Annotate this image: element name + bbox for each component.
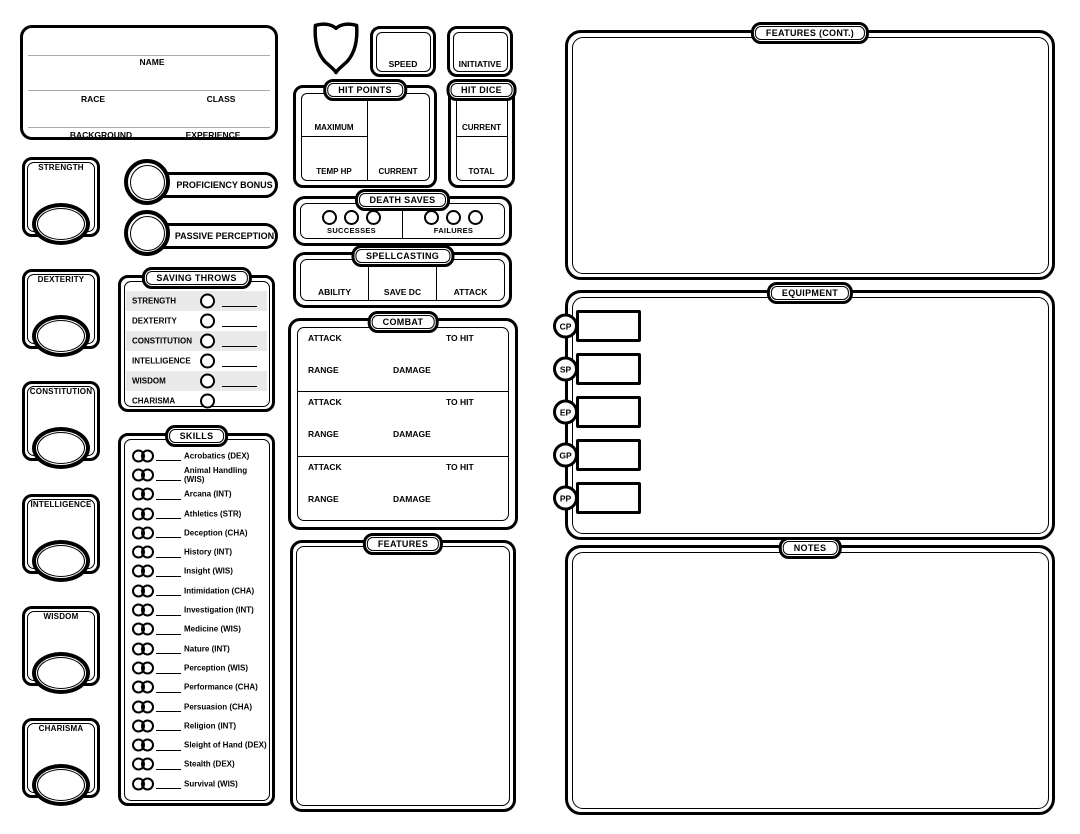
hit-points-panel: HIT POINTS MAXIMUM TEMP HP CURRENT [293,85,437,188]
saving-throw-row: CONSTITUTION [126,331,267,351]
speed-box[interactable]: SPEED [370,26,436,77]
combat-attack-row[interactable]: ATTACK TO HIT RANGE DAMAGE [298,391,508,455]
skill-row: Persuasion (CHA) [126,697,267,716]
skill-expertise-circle[interactable] [141,565,154,578]
skill-row: Deception (CHA) [126,523,267,542]
skill-label: Nature (INT) [184,644,230,653]
hit-dice-panel: HIT DICE CURRENT TOTAL [448,85,515,188]
divider [28,90,270,91]
hit-dice-grid: CURRENT TOTAL [456,93,508,181]
skill-label: Performance (CHA) [184,683,258,692]
saving-throw-proficiency-circle[interactable] [200,374,215,389]
skill-expertise-circle[interactable] [141,739,154,752]
hit-dice-tab: HIT DICE [446,79,517,101]
skill-expertise-circle[interactable] [141,468,154,481]
speed-label: SPEED [373,59,433,69]
skill-row: Performance (CHA) [126,678,267,697]
skill-value-line[interactable] [156,615,181,616]
skill-value-line[interactable] [156,460,181,461]
coin-row: CP [553,310,643,342]
identity-panel: NAME RACE CLASS BACKGROUND EXPERIENCE [20,25,278,140]
features-tab: FEATURES [363,533,443,555]
skill-label: Athletics (STR) [184,509,241,518]
skill-value-line[interactable] [156,518,181,519]
skill-value-line[interactable] [156,711,181,712]
attack-label: ATTACK [308,333,342,343]
ability-label: WISDOM [22,612,100,621]
success-circle[interactable] [366,210,381,225]
skills-tab: SKILLS [165,425,229,447]
hit-dice-total-label: TOTAL [457,167,507,176]
failure-circles [424,210,483,225]
proficiency-bonus-circle[interactable] [124,159,170,205]
coin-row: SP [553,353,643,385]
skill-row: Insight (WIS) [126,562,267,581]
skill-value-line[interactable] [156,769,181,770]
ability-score-box[interactable]: INTELLIGENCE [22,494,100,574]
skill-value-line[interactable] [156,673,181,674]
success-circle[interactable] [344,210,359,225]
combat-panel: COMBAT ATTACK TO HIT RANGE DAMAGE ATTACK… [288,318,518,530]
attack-label: ATTACK [308,397,342,407]
saving-throw-label: CONSTITUTION [132,337,192,346]
skill-row: Perception (WIS) [126,658,267,677]
hit-points-left-column: MAXIMUM TEMP HP [302,94,368,180]
saving-throw-label: WISDOM [132,377,166,386]
coin-amount-box[interactable] [576,482,641,514]
skill-label: Stealth (DEX) [184,760,235,769]
skill-rows: Acrobatics (DEX) Animal Handling (WIS) A… [126,446,267,793]
coin-amount-box[interactable] [576,396,641,428]
coin-amount-box[interactable] [576,439,641,471]
range-label: RANGE [308,429,339,439]
hit-points-tab: HIT POINTS [323,79,407,101]
failure-circle[interactable] [446,210,461,225]
coin-type-label: GP [559,450,571,460]
skill-value-line[interactable] [156,634,181,635]
divider [28,55,270,56]
dnd-character-sheet: NAME RACE CLASS BACKGROUND EXPERIENCE ST… [0,0,1080,834]
death-saves-panel: DEATH SAVES SUCCESSES FAILURES [293,196,512,246]
skill-value-line[interactable] [156,576,181,577]
skill-label: History (INT) [184,548,232,557]
coin-row: GP [553,439,643,471]
name-label: NAME [139,57,164,67]
spellcasting-cell-label: ATTACK [437,287,504,297]
ability-label: INTELLIGENCE [22,500,100,509]
skills-title: SKILLS [180,431,214,441]
features-field[interactable] [301,551,505,801]
hp-current-label: CURRENT [368,167,429,176]
skill-value-line[interactable] [156,480,181,481]
ability-modifier-oval[interactable] [32,203,90,245]
class-label: CLASS [207,94,236,104]
hit-dice-current-label: CURRENT [457,123,507,132]
ability-label: STRENGTH [22,163,100,172]
skill-expertise-circle[interactable] [141,449,154,462]
spellcasting-cell-label: SAVE DC [369,287,436,297]
combat-attack-row[interactable]: ATTACK TO HIT RANGE DAMAGE [298,328,508,391]
skill-row: Arcana (INT) [126,485,267,504]
skill-label: Perception (WIS) [184,663,248,672]
ability-label: CHARISMA [22,724,100,733]
class-field[interactable] [163,60,267,88]
skill-expertise-circle[interactable] [141,681,154,694]
saving-throw-value-line[interactable] [222,406,257,407]
shield-icon[interactable] [311,21,361,80]
skill-label: Sleight of Hand (DEX) [184,741,267,750]
notes-panel: NOTES [565,545,1055,815]
skill-row: Athletics (STR) [126,504,267,523]
skill-label: Deception (CHA) [184,528,248,537]
range-label: RANGE [308,494,339,504]
skill-row: Religion (INT) [126,716,267,735]
coin-type-label: EP [560,407,571,417]
saving-throws-title: SAVING THROWS [156,273,236,283]
combat-tab: COMBAT [368,311,439,333]
damage-label: DAMAGE [393,494,431,504]
initiative-label: INITIATIVE [450,59,510,69]
proficiency-bonus-label: PROFICIENCY BONUS [176,180,272,190]
race-label: RACE [81,94,105,104]
skill-value-line[interactable] [156,730,181,731]
saving-throw-label: DEXTERITY [132,317,177,326]
skill-label: Intimidation (CHA) [184,586,254,595]
skill-label: Investigation (INT) [184,606,254,615]
hp-temp-cell[interactable]: TEMP HP [302,137,367,180]
skill-label: Medicine (WIS) [184,625,241,634]
notes-title: NOTES [794,543,827,553]
ability-label: DEXTERITY [22,275,100,284]
experience-label: EXPERIENCE [186,130,241,140]
skill-expertise-circle[interactable] [141,719,154,732]
coin-type-badge: PP [553,486,578,511]
coin-column: CP SP EP GP [553,310,643,525]
skill-value-line[interactable] [156,788,181,789]
skill-expertise-circle[interactable] [141,546,154,559]
skill-label: Animal Handling (WIS) [184,466,267,484]
skill-expertise-circle[interactable] [141,507,154,520]
equipment-title: EQUIPMENT [782,288,838,298]
spellcasting-title: SPELLCASTING [366,251,439,261]
skill-label: Survival (WIS) [184,779,238,788]
success-circles [322,210,381,225]
skills-panel: SKILLS Acrobatics (DEX) Animal Handling … [118,433,275,806]
coin-type-badge: CP [553,314,578,339]
hp-maximum-label: MAXIMUM [302,123,367,132]
saving-throw-rows: STRENGTH DEXTERITY CONSTITUTION [126,291,267,411]
to-hit-label: TO HIT [446,333,474,343]
equipment-field[interactable] [576,301,1044,529]
features-panel: FEATURES [290,540,516,812]
features-cont-title: FEATURES (CONT.) [766,28,854,38]
saving-throw-row: STRENGTH [126,291,267,311]
spellcasting-cell-label: ABILITY [301,287,368,297]
failures-label: FAILURES [434,226,474,235]
passive-perception-label: PASSIVE PERCEPTION [175,231,274,241]
skill-value-line[interactable] [156,537,181,538]
failure-circle[interactable] [468,210,483,225]
range-label: RANGE [308,365,339,375]
skill-row: Intimidation (CHA) [126,581,267,600]
coin-type-badge: EP [553,400,578,425]
saving-throw-value-line[interactable] [222,386,257,387]
skill-expertise-circle[interactable] [141,758,154,771]
skill-value-line[interactable] [156,499,181,500]
skill-row: Stealth (DEX) [126,755,267,774]
combat-attack-row[interactable]: ATTACK TO HIT RANGE DAMAGE [298,456,508,520]
notes-tab: NOTES [779,537,842,559]
skill-label: Persuasion (CHA) [184,702,252,711]
ability-modifier-oval[interactable] [32,315,90,357]
features-cont-panel: FEATURES (CONT.) [565,30,1055,280]
coin-type-label: PP [560,493,571,503]
coin-amount-box[interactable] [576,353,641,385]
coin-type-label: SP [560,364,571,374]
ability-modifier-oval[interactable] [32,427,90,469]
coin-type-badge: GP [553,443,578,468]
notes-field[interactable] [576,556,1044,804]
skill-expertise-circle[interactable] [141,584,154,597]
features-cont-field[interactable] [576,41,1044,269]
skill-label: Insight (WIS) [184,567,233,576]
skill-expertise-circle[interactable] [141,604,154,617]
skill-row: Medicine (WIS) [126,620,267,639]
damage-label: DAMAGE [393,365,431,375]
ability-modifier-oval[interactable] [32,540,90,582]
saving-throw-proficiency-circle[interactable] [200,394,215,409]
hp-current-cell[interactable]: CURRENT [368,94,429,180]
divider [28,127,270,128]
ability-score-box[interactable]: STRENGTH [22,157,100,237]
saving-throw-label: CHARISMA [132,397,175,406]
hit-points-grid: MAXIMUM TEMP HP CURRENT [301,93,430,181]
skill-label: Arcana (INT) [184,490,232,499]
skill-expertise-circle[interactable] [141,661,154,674]
initiative-box[interactable]: INITIATIVE [447,26,513,77]
skill-value-line[interactable] [156,653,181,654]
ability-score-box[interactable]: DEXTERITY [22,269,100,349]
coin-row: PP [553,482,643,514]
saving-throw-value-line[interactable] [222,326,257,327]
combat-title: COMBAT [383,317,424,327]
death-saves-tab: DEATH SAVES [355,189,451,211]
background-label: BACKGROUND [70,130,132,140]
skill-expertise-circle[interactable] [141,488,154,501]
skill-expertise-circle[interactable] [141,526,154,539]
ability-score-box[interactable]: CONSTITUTION [22,381,100,461]
saving-throw-proficiency-circle[interactable] [200,294,215,309]
skill-expertise-circle[interactable] [141,777,154,790]
equipment-tab: EQUIPMENT [767,282,853,304]
skill-row: Animal Handling (WIS) [126,465,267,484]
race-field[interactable] [31,60,149,88]
skill-row: Nature (INT) [126,639,267,658]
ability-label: CONSTITUTION [22,387,100,396]
coin-type-label: CP [560,321,572,331]
attack-label: ATTACK [308,462,342,472]
ability-score-box[interactable]: CHARISMA [22,718,100,798]
damage-label: DAMAGE [393,429,431,439]
skill-label: Religion (INT) [184,721,236,730]
skill-row: Sleight of Hand (DEX) [126,735,267,754]
features-cont-tab: FEATURES (CONT.) [751,22,869,44]
skill-expertise-circle[interactable] [141,700,154,713]
skill-row: History (INT) [126,542,267,561]
coin-row: EP [553,396,643,428]
name-field[interactable] [31,32,267,54]
saving-throw-row: DEXTERITY [126,311,267,331]
successes-label: SUCCESSES [327,226,376,235]
to-hit-label: TO HIT [446,462,474,472]
ability-score-column: STRENGTH DEXTERITY CONSTITUTION INTELLIG… [22,157,100,830]
saving-throws-panel: SAVING THROWS STRENGTH DEXTERITY CONSTIT… [118,275,275,412]
hit-dice-total-cell[interactable]: TOTAL [457,137,507,180]
saving-throw-value-line[interactable] [222,366,257,367]
saving-throw-label: INTELLIGENCE [132,357,191,366]
skill-value-line[interactable] [156,692,181,693]
features-title: FEATURES [378,539,428,549]
saving-throws-tab: SAVING THROWS [141,267,251,289]
skill-label: Acrobatics (DEX) [184,451,249,460]
skill-expertise-circle[interactable] [141,623,154,636]
ability-score-box[interactable]: WISDOM [22,606,100,686]
skill-value-line[interactable] [156,557,181,558]
skill-row: Survival (WIS) [126,774,267,793]
death-saves-title: DEATH SAVES [370,195,436,205]
saving-throw-value-line[interactable] [222,306,257,307]
failure-circle[interactable] [424,210,439,225]
success-circle[interactable] [322,210,337,225]
skill-value-line[interactable] [156,750,181,751]
skill-expertise-circle[interactable] [141,642,154,655]
saving-throw-value-line[interactable] [222,346,257,347]
coin-type-badge: SP [553,357,578,382]
ability-modifier-oval[interactable] [32,652,90,694]
spellcasting-panel: SPELLCASTING ABILITY SAVE DC ATTACK [293,252,512,308]
skill-row: Investigation (INT) [126,600,267,619]
saving-throw-proficiency-circle[interactable] [200,314,215,329]
spellcasting-tab: SPELLCASTING [351,245,454,267]
ability-modifier-oval[interactable] [32,764,90,806]
saving-throw-proficiency-circle[interactable] [200,334,215,349]
saving-throw-row: INTELLIGENCE [126,351,267,371]
hit-points-title: HIT POINTS [338,85,392,95]
passive-perception-circle[interactable] [124,210,170,256]
saving-throw-proficiency-circle[interactable] [200,354,215,369]
saving-throw-label: STRENGTH [132,297,176,306]
skill-value-line[interactable] [156,595,181,596]
saving-throw-row: WISDOM [126,371,267,391]
coin-amount-box[interactable] [576,310,641,342]
combat-rows: ATTACK TO HIT RANGE DAMAGE ATTACK TO HIT… [297,327,509,521]
skill-row: Acrobatics (DEX) [126,446,267,465]
hit-dice-title: HIT DICE [461,85,502,95]
saving-throw-row: CHARISMA [126,391,267,411]
hp-temp-label: TEMP HP [302,167,367,176]
to-hit-label: TO HIT [446,397,474,407]
